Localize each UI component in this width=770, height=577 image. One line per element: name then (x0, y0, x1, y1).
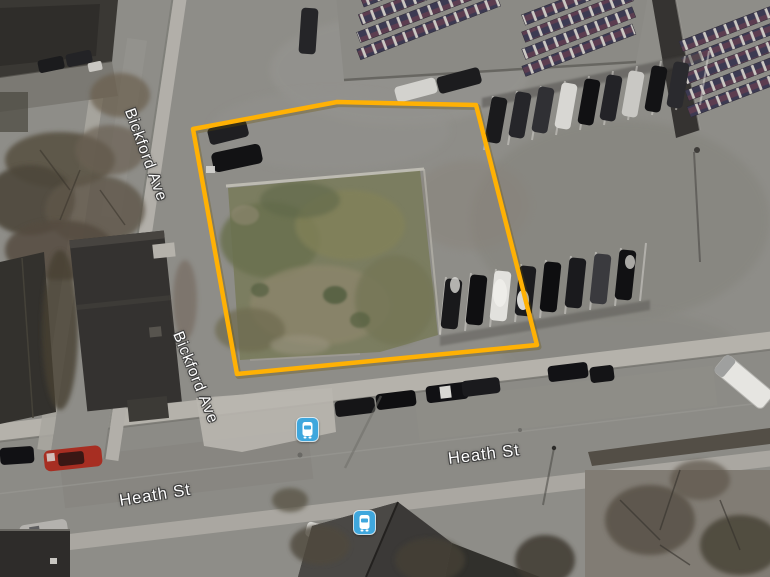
bus-icon (353, 510, 376, 535)
satellite-imagery (0, 0, 770, 577)
map-viewport[interactable]: Bickford Ave Bickford Ave Heath St Heath… (0, 0, 770, 577)
vacant-lot (215, 169, 440, 360)
bus-stop-marker-south[interactable] (353, 510, 376, 535)
bus-stop-marker-north[interactable] (296, 417, 319, 442)
bus-icon (296, 417, 319, 442)
